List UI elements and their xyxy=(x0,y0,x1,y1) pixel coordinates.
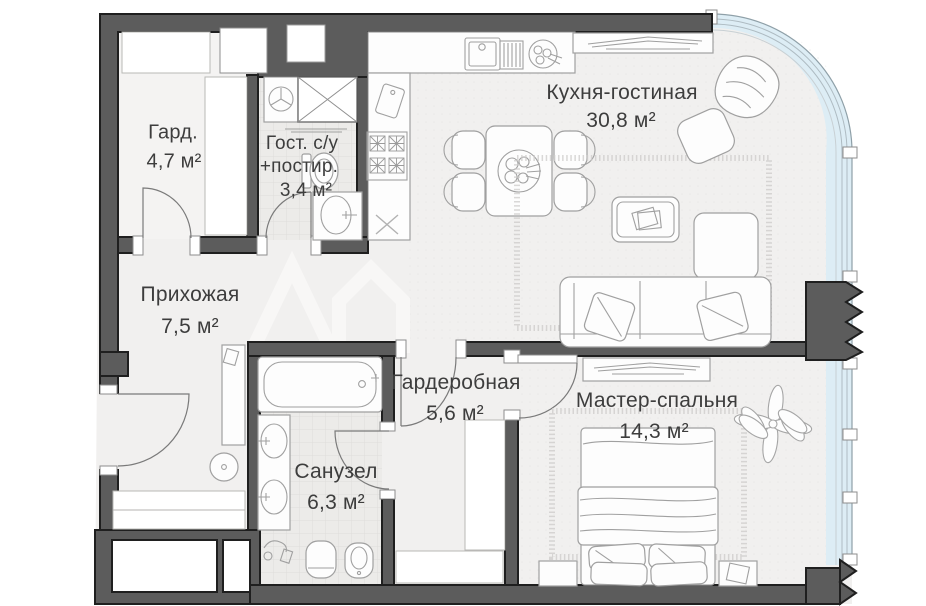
mullion-1 xyxy=(843,271,857,282)
wall-gard-bottom-1 xyxy=(118,237,134,253)
coffee-table-icon xyxy=(612,197,679,242)
jamb xyxy=(380,422,395,431)
wall-bottom xyxy=(250,585,840,604)
jamb xyxy=(133,236,143,255)
burner-grate xyxy=(370,136,385,151)
room-label-wardrobe: Гардеробная xyxy=(391,371,520,395)
jamb xyxy=(100,466,117,475)
bathtub-icon xyxy=(258,357,382,412)
wardrobe-hatch-gard-top xyxy=(122,32,210,73)
shaft-box xyxy=(220,28,267,73)
wardrobe-hatch-gard-right xyxy=(205,77,247,235)
niche-2 xyxy=(223,540,250,592)
bed-icon xyxy=(578,428,718,586)
niche-1 xyxy=(112,540,217,592)
wall-gard-bottom-2 xyxy=(199,237,258,253)
wall-gard-wc xyxy=(247,75,258,240)
nightstand-left xyxy=(539,561,577,586)
room-label-master: Мастер-спальня xyxy=(576,389,738,413)
room-area-gard: 4,7 м² xyxy=(147,151,202,174)
toilet-bowl xyxy=(306,541,336,578)
toilet-icon-2 xyxy=(306,541,336,578)
dining-chair xyxy=(452,131,485,169)
door-master-leaf xyxy=(518,355,577,363)
room-label-guest-wc-2: +постир. xyxy=(260,156,338,178)
floor-plan-drawing xyxy=(0,0,926,606)
plant-center xyxy=(769,420,777,428)
bidet-bowl xyxy=(345,543,373,578)
room-label-kitchen: Кухня-гостиная xyxy=(546,81,697,105)
mullion-3 xyxy=(843,429,857,440)
wardrobe-hatch-closet xyxy=(465,420,505,550)
pillow xyxy=(591,562,648,586)
pier-right-zigzag xyxy=(806,282,862,360)
dining-chair xyxy=(452,173,485,211)
sofa-chaise xyxy=(694,213,758,279)
dining-chair xyxy=(554,173,587,211)
wall-mid-1 xyxy=(248,342,397,356)
jamb xyxy=(380,490,395,499)
jamb xyxy=(504,410,520,420)
room-area-hall: 7,5 м² xyxy=(161,315,219,339)
console-table xyxy=(222,345,245,445)
wall-wardrobe-master xyxy=(505,418,518,585)
stool-icon xyxy=(210,453,238,481)
room-area-kitchen: 30,8 м² xyxy=(586,109,656,133)
dish-drainer-icon xyxy=(500,41,523,69)
jamb xyxy=(257,236,267,255)
jamb xyxy=(396,340,406,358)
kitchen-counter-left xyxy=(368,73,410,240)
burner-grate xyxy=(370,158,385,173)
floor-plan: Гард. 4,7 м² Гост. с/у +постир. 3,4 м² К… xyxy=(0,0,926,606)
mullion-4 xyxy=(843,492,857,503)
bidet-icon xyxy=(345,543,373,578)
jamb xyxy=(100,385,117,394)
shelf-hatch-closet-bottom xyxy=(396,551,503,583)
room-area-guest-wc: 3,4 м² xyxy=(280,180,332,202)
facade-niche xyxy=(287,25,325,62)
room-label-gard: Гард. xyxy=(148,122,198,145)
entry-closet-hatch xyxy=(113,491,245,529)
coffee-table xyxy=(612,197,679,242)
wall-bottom-right xyxy=(806,568,840,604)
double-vanity-icon xyxy=(258,415,290,530)
bathtub-outer xyxy=(258,357,382,412)
room-area-master: 14,3 м² xyxy=(619,420,689,444)
room-area-bathroom: 6,3 м² xyxy=(307,491,365,515)
wall-column-left xyxy=(100,352,128,376)
jamb xyxy=(190,236,200,255)
room-label-hall: Прихожая xyxy=(141,283,240,307)
wall-bath-wardrobe-2 xyxy=(382,499,394,585)
jamb xyxy=(456,340,466,358)
room-label-guest-wc: Гост. с/у xyxy=(266,133,338,155)
burner-grate xyxy=(389,158,404,173)
mullion-curve-end xyxy=(843,147,857,158)
room-label-bathroom: Санузел xyxy=(294,460,377,484)
room-area-wardrobe: 5,6 м² xyxy=(426,402,484,426)
dining-chair xyxy=(554,131,587,169)
pillow xyxy=(650,561,707,586)
burner-grate xyxy=(389,136,404,151)
